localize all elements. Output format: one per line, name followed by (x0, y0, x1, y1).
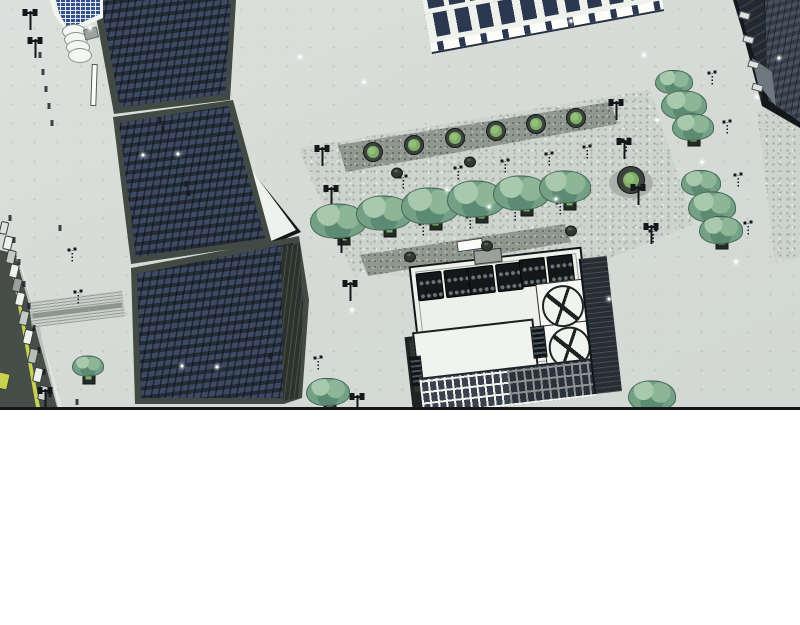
tree (72, 356, 104, 377)
bush (565, 226, 577, 237)
snow-speck (555, 198, 558, 201)
tree (539, 171, 591, 204)
street-lamp-small (583, 145, 592, 160)
round-planter (404, 135, 424, 155)
tree (628, 381, 676, 411)
bollard (42, 69, 45, 75)
bollard (45, 86, 48, 92)
bollard (185, 181, 188, 187)
bollard (28, 303, 31, 309)
snow-speck (351, 309, 354, 312)
street-lamp-twin (38, 387, 53, 409)
bollard (48, 103, 51, 109)
snow-speck (142, 154, 145, 157)
vehicle (8, 263, 20, 279)
street-lamp-small (734, 173, 743, 188)
street-lamp-small (545, 152, 554, 167)
street-lamp-twin (617, 138, 632, 160)
bollard (159, 117, 162, 123)
snow-speck (488, 206, 491, 209)
snow-speck (89, 27, 92, 30)
tree (699, 216, 743, 244)
street-lamp-small (314, 356, 323, 371)
bollard (76, 399, 79, 405)
snow-speck (778, 57, 781, 60)
bollard (13, 237, 16, 243)
street-lamp-twin (609, 99, 624, 121)
vehicle (14, 291, 26, 307)
snow-speck (299, 56, 302, 59)
street-lamp-twin (350, 393, 365, 410)
vehicle (11, 277, 23, 293)
street-lamp-twin (631, 184, 646, 206)
street-lamp-twin (644, 223, 659, 245)
bollard (9, 215, 12, 221)
street-lamp-small (399, 175, 408, 190)
round-planter (526, 114, 546, 134)
tree (306, 378, 350, 406)
snow-speck (570, 20, 573, 23)
bollard (33, 325, 36, 331)
street-lamp-twin (28, 37, 43, 59)
bollard (269, 353, 272, 359)
snow-speck (701, 161, 704, 164)
snow-speck (656, 119, 659, 122)
street-lamp-small (708, 71, 717, 86)
bollard (59, 225, 62, 231)
round-planter (486, 121, 506, 141)
bollard (23, 281, 26, 287)
vehicle (22, 329, 34, 346)
bollard (38, 347, 41, 353)
snow-speck (446, 189, 449, 192)
bollard (162, 126, 165, 132)
snow-speck (735, 261, 738, 264)
street-objects-layer (0, 0, 800, 407)
street-lamp-small (744, 221, 753, 236)
snow-speck (181, 365, 184, 368)
bench (456, 238, 483, 253)
street-lamp-twin (315, 145, 330, 167)
street-lamp-small (74, 290, 83, 305)
round-planter (566, 108, 586, 128)
bush (464, 157, 476, 168)
round-planter (363, 142, 383, 162)
street-lamp-small (723, 120, 732, 135)
vehicle (0, 371, 11, 390)
street-lamp-small (454, 166, 463, 181)
snow-speck (643, 54, 646, 57)
snow-speck (177, 153, 180, 156)
comic-panel (0, 0, 800, 410)
snow-speck (216, 366, 219, 369)
bollard (188, 190, 191, 196)
bollard (18, 259, 21, 265)
street-lamp-small (68, 248, 77, 263)
vehicle (0, 221, 9, 235)
street-lamp-small (501, 159, 510, 174)
street-lamp-twin (23, 9, 38, 31)
street-lamp-twin (343, 280, 358, 302)
vehicle (18, 310, 30, 327)
page-whitespace (0, 410, 800, 625)
snow-speck (756, 96, 759, 99)
bollard (43, 369, 46, 375)
tree (672, 114, 714, 141)
snow-speck (608, 298, 611, 301)
round-planter (445, 128, 465, 148)
snow-speck (363, 81, 366, 84)
bush (404, 252, 416, 263)
bush (481, 241, 493, 252)
vehicle (5, 249, 17, 265)
bollard (51, 120, 54, 126)
